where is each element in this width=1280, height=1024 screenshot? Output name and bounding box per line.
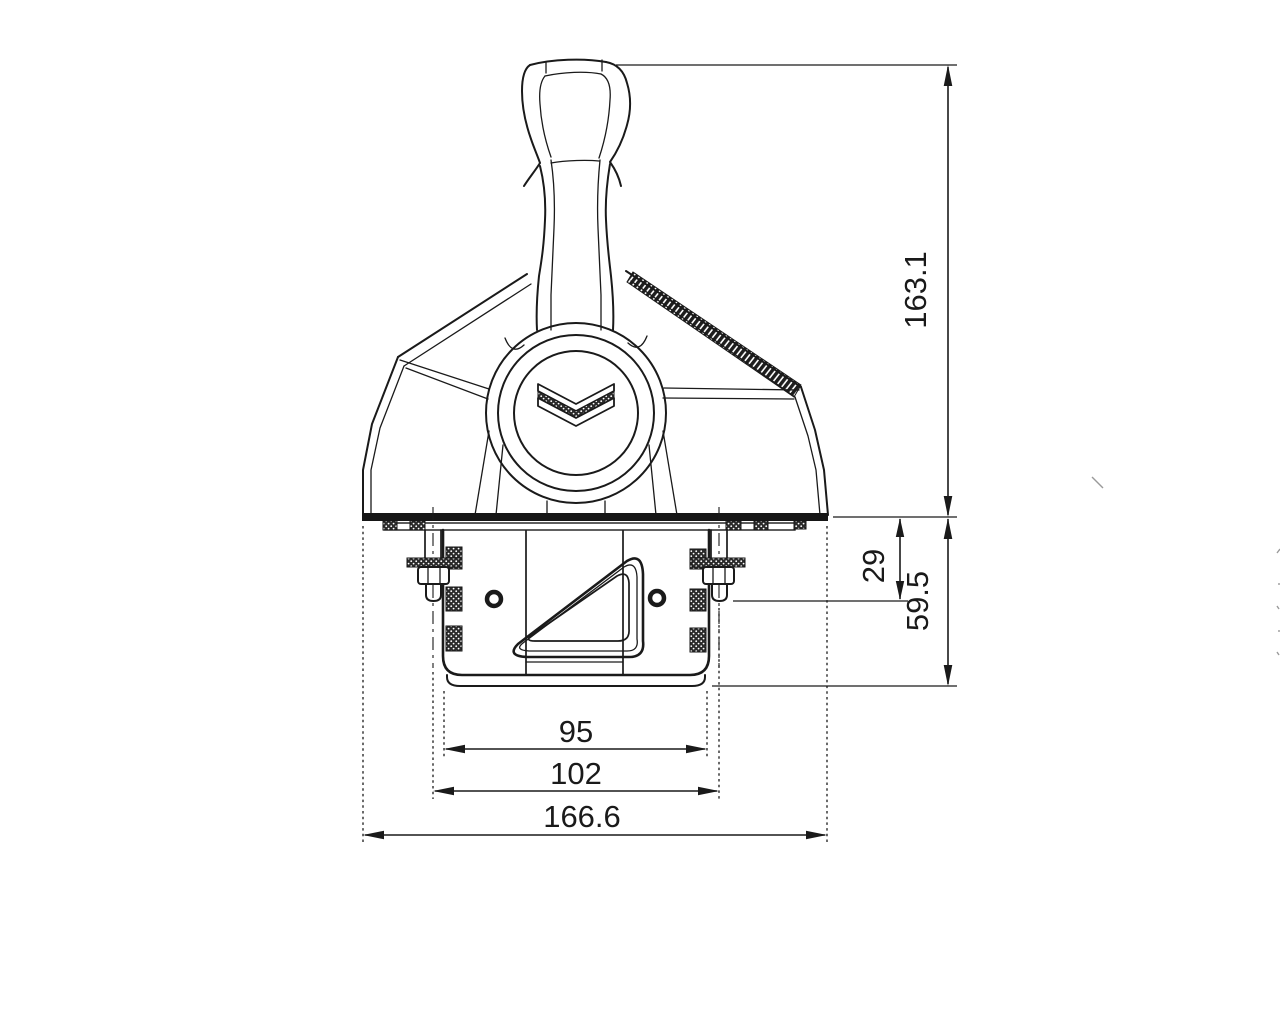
right-shoulder-inner-line xyxy=(631,281,795,397)
grip-inner-top xyxy=(545,72,601,76)
plate-edge-bar xyxy=(362,513,828,521)
left-edge-outer-line xyxy=(363,357,398,515)
right-edge-inner-line xyxy=(795,397,820,515)
arrowhead-down xyxy=(944,496,953,517)
bolt-washer xyxy=(407,558,460,567)
dim-overall-height: 163.1 xyxy=(616,65,957,517)
right-edge-outer-line xyxy=(801,387,828,515)
arrowhead-down xyxy=(944,665,953,686)
arrowhead-up xyxy=(896,518,904,537)
grip-left-outline xyxy=(522,65,540,186)
arrowhead-right xyxy=(806,831,827,840)
arrowhead-left xyxy=(433,787,454,796)
drawing-canvas: 163.1 29 59.5 95 xyxy=(0,0,1280,1024)
neck-right-outer xyxy=(606,164,614,330)
mounting-plate xyxy=(362,513,828,530)
housing-bottom-lip xyxy=(447,675,705,686)
grip-inner-left xyxy=(540,76,551,157)
rubber-pad xyxy=(690,589,706,611)
dim-label-under-panel-depth: 59.5 xyxy=(900,571,935,631)
mounting-hole-right xyxy=(650,591,664,605)
throttle-lever xyxy=(522,60,630,330)
arrowhead-right xyxy=(686,745,707,754)
dim-stud-spacing: 102 xyxy=(433,608,719,799)
technical-drawing: 163.1 29 59.5 95 xyxy=(0,0,1280,1024)
bolt-washer xyxy=(692,558,745,567)
rubber-pad xyxy=(446,587,462,611)
handle-grip xyxy=(522,60,630,186)
left-edge-inner-line xyxy=(371,366,404,515)
left-trim-diagonal-2 xyxy=(406,368,488,399)
dim-label-plate-to-stud-tip: 29 xyxy=(856,549,891,583)
grip-top-edge xyxy=(530,60,606,65)
bolt-nut xyxy=(703,567,734,584)
arrowhead-right xyxy=(698,787,719,796)
plate-fitting-block xyxy=(410,521,425,530)
right-shoulder-hatch-band xyxy=(627,272,801,397)
plate-fitting-block xyxy=(726,521,741,530)
right-shoulder-outer-line xyxy=(626,271,801,387)
arrowhead-up xyxy=(944,518,953,539)
arrowhead-up xyxy=(944,65,953,86)
neck-right-inner xyxy=(598,160,601,330)
rubber-pad xyxy=(690,628,706,652)
bolt-nut xyxy=(418,567,449,584)
double-chevron-down-icon xyxy=(538,384,614,426)
left-lower-trim-a xyxy=(475,431,489,515)
mounting-hole-left xyxy=(487,592,501,606)
arrowhead-left xyxy=(444,745,465,754)
lower-housing xyxy=(443,530,709,686)
right-lower-trim-a xyxy=(663,431,677,515)
dim-label-base-plate-width: 166.6 xyxy=(543,799,621,834)
plate-fitting-block xyxy=(794,521,806,529)
dim-label-stud-spacing: 102 xyxy=(550,756,602,791)
lever-neck xyxy=(537,160,614,330)
hub-emblem xyxy=(486,323,666,503)
neck-left-inner xyxy=(551,160,554,330)
left-shoulder-inner-line xyxy=(404,284,531,366)
cutout-inner-outline xyxy=(529,574,629,641)
dim-label-overall-height: 163.1 xyxy=(898,251,933,329)
neck-left-outer xyxy=(537,166,546,330)
dim-housing-width: 95 xyxy=(444,691,707,757)
scan-artifacts xyxy=(1092,477,1280,655)
dim-under-panel-depth: 59.5 xyxy=(712,518,957,686)
grip-waist-line xyxy=(551,160,599,163)
plate-fitting-block xyxy=(383,521,397,530)
right-trim-diagonal-2 xyxy=(663,398,794,399)
cutout-mid-outline xyxy=(520,565,638,651)
rubber-pad xyxy=(446,626,462,651)
arrowhead-left xyxy=(363,831,384,840)
left-trim-diagonal xyxy=(400,360,489,389)
plate-fitting-block xyxy=(754,521,768,530)
dimension-annotations: 163.1 29 59.5 95 xyxy=(363,65,957,842)
dim-label-housing-width: 95 xyxy=(559,714,593,749)
grip-inner-right xyxy=(599,74,610,158)
right-trim-diagonal xyxy=(664,388,799,390)
